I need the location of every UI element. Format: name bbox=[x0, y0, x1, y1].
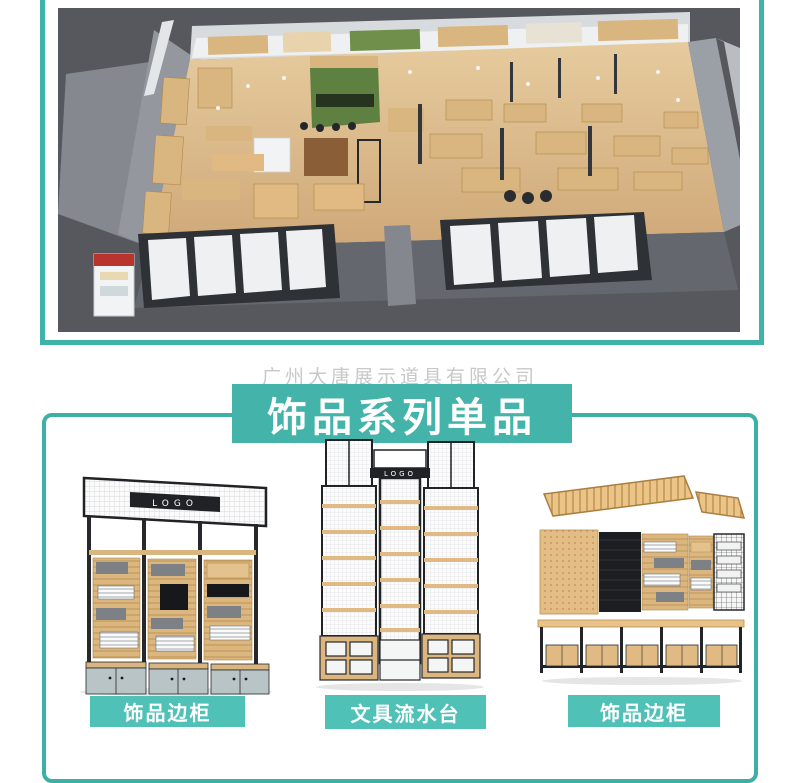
product-label-1: 饰品边柜 bbox=[90, 696, 245, 727]
page-root: { "colors": { "accent": "#44b4aa", "acce… bbox=[0, 0, 800, 750]
product-label-2: 文具流水台 bbox=[325, 695, 486, 729]
product-render-accessories-cabinet-1: LOGO bbox=[74, 466, 274, 696]
hero-photo bbox=[58, 8, 740, 332]
store-render-illustration bbox=[58, 8, 740, 332]
product-render-stationery-table: LOGO bbox=[310, 428, 490, 693]
product-label-3: 饰品边柜 bbox=[568, 695, 720, 727]
product1-logo-text: LOGO bbox=[152, 499, 198, 509]
product-render-accessories-cabinet-2 bbox=[536, 462, 748, 687]
